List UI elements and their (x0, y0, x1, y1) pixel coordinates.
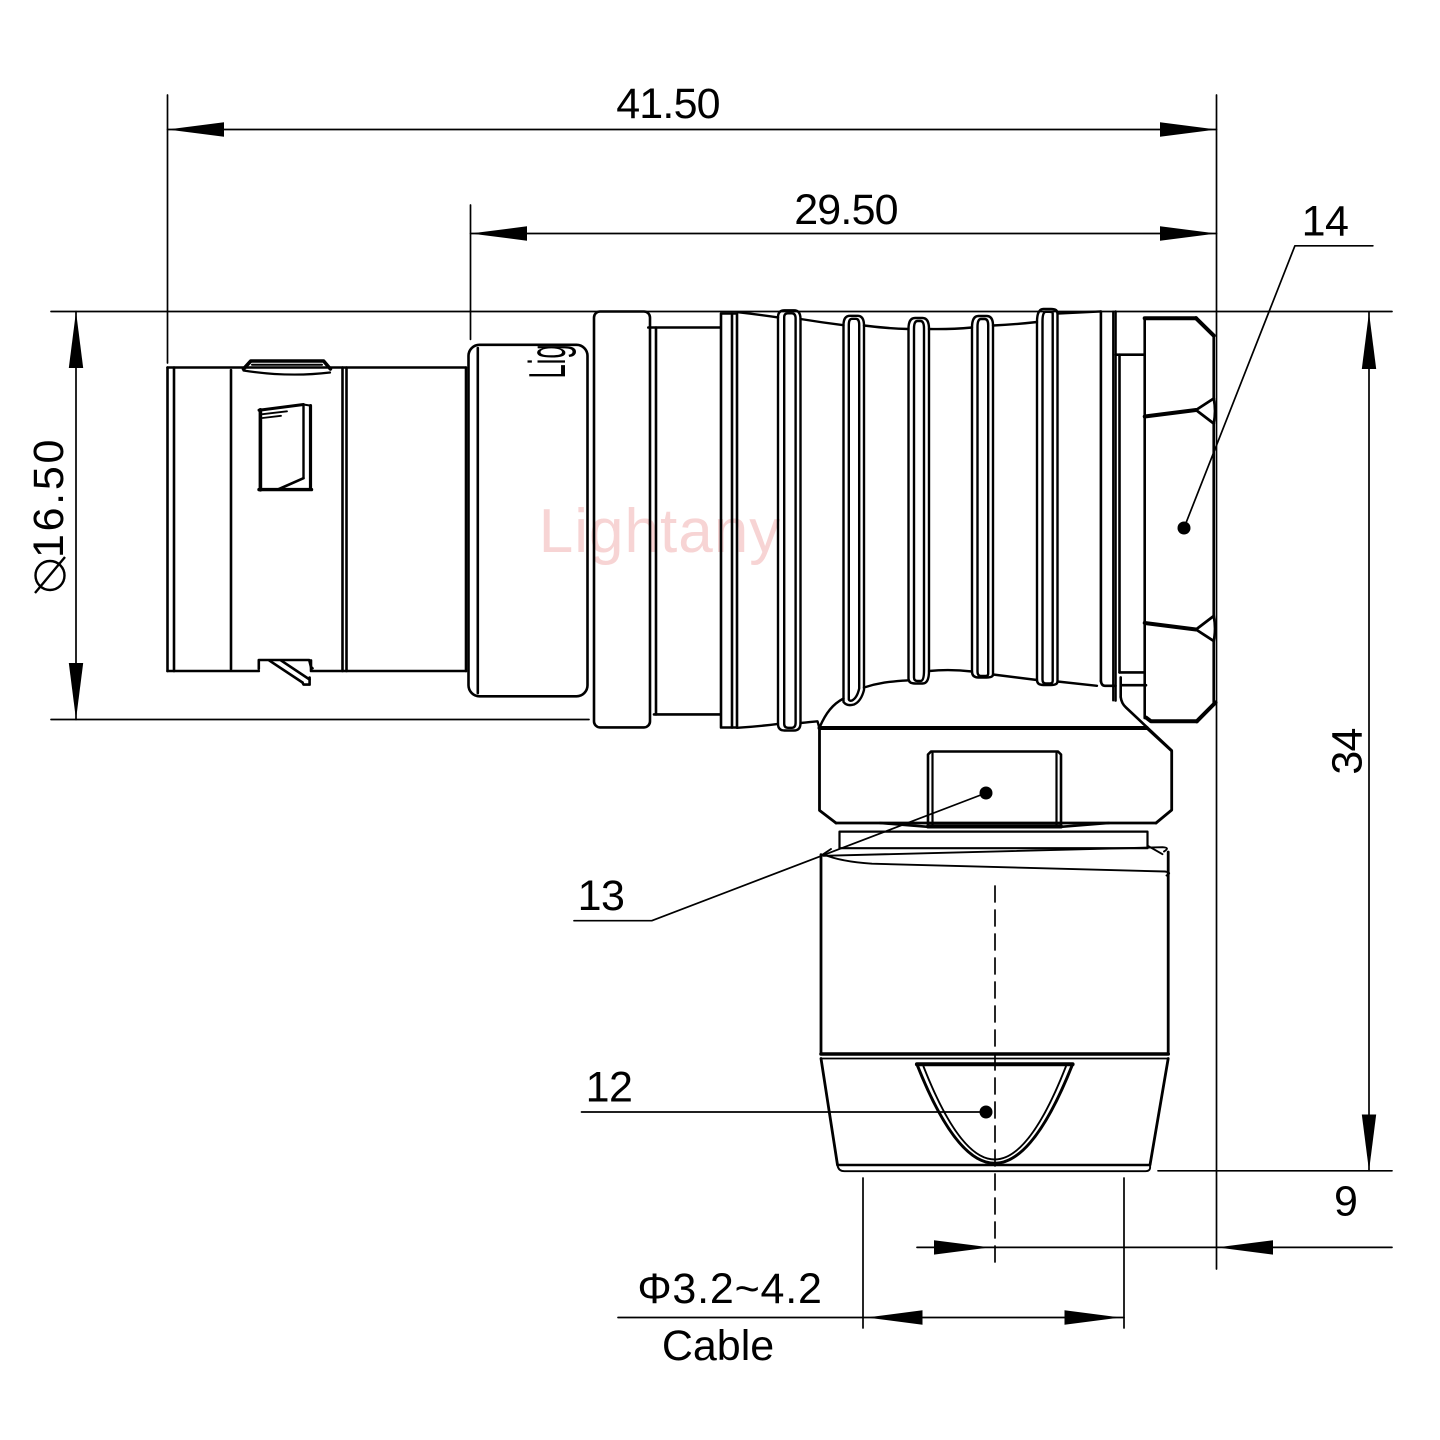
svg-text:Lightany: Lightany (539, 497, 781, 566)
svg-text:Φ3.2~4.2: Φ3.2~4.2 (637, 1265, 822, 1313)
svg-text:Lig: Lig (519, 345, 577, 379)
svg-text:13: 13 (578, 872, 625, 920)
svg-text:12: 12 (586, 1064, 633, 1112)
svg-text:16.50: 16.50 (25, 437, 73, 558)
svg-text:9: 9 (1334, 1178, 1358, 1226)
svg-text:41.50: 41.50 (616, 80, 720, 128)
svg-text:29.50: 29.50 (794, 186, 898, 234)
svg-text:Cable: Cable (662, 1322, 774, 1370)
svg-text:14: 14 (1302, 198, 1349, 246)
svg-text:34: 34 (1324, 728, 1372, 774)
